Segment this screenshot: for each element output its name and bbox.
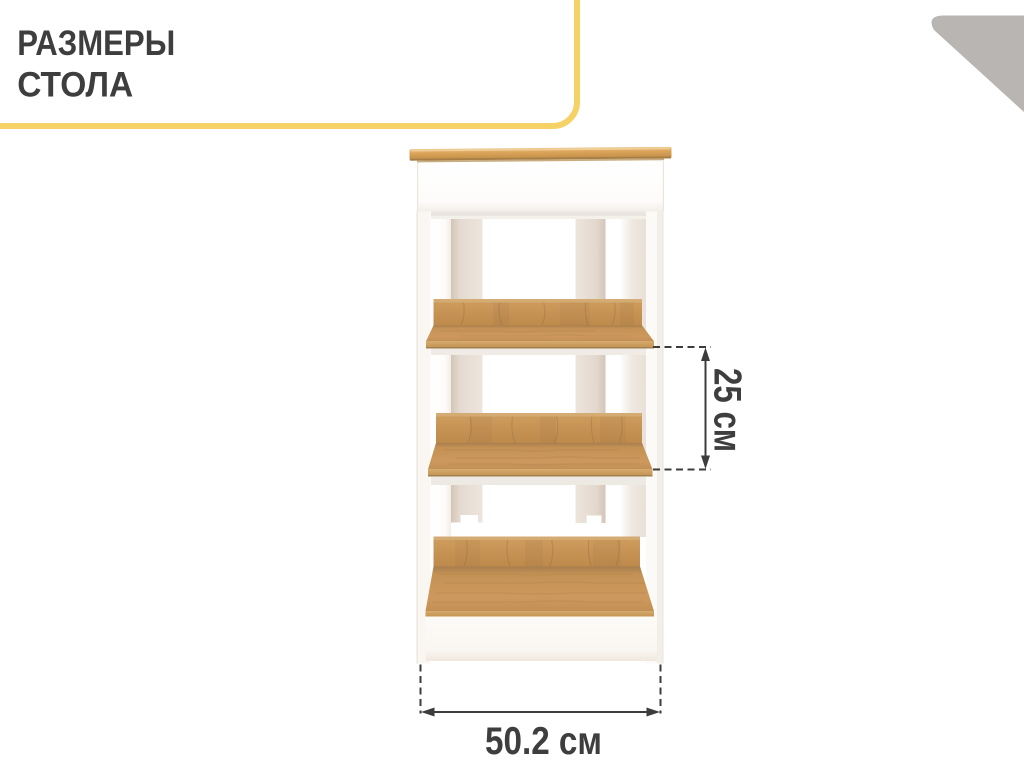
svg-text:25 см: 25 см (706, 368, 749, 452)
svg-text:РАЗМЕРЫ: РАЗМЕРЫ (17, 23, 175, 63)
svg-text:50.2 см: 50.2 см (485, 720, 602, 763)
svg-text:СТОЛА: СТОЛА (17, 65, 133, 105)
